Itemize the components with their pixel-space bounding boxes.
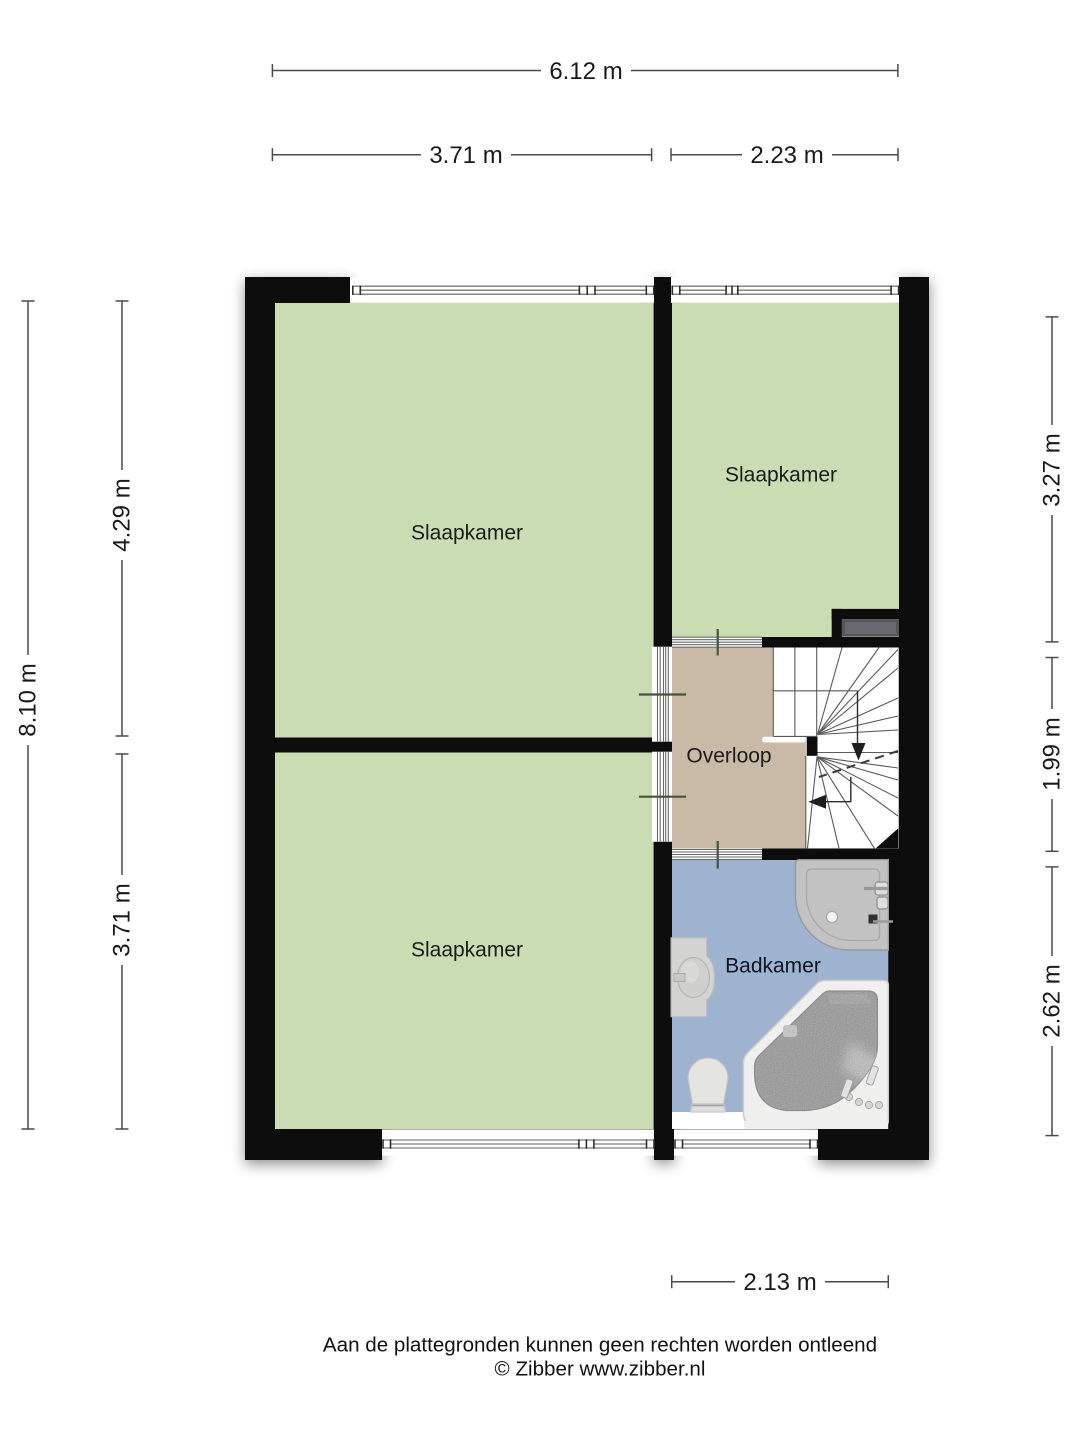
svg-text:1.99 m: 1.99 m (1039, 717, 1066, 790)
svg-text:4.29 m: 4.29 m (109, 478, 136, 551)
svg-text:8.10 m: 8.10 m (15, 663, 42, 736)
svg-text:Slaapkamer: Slaapkamer (411, 522, 523, 545)
svg-text:Slaapkamer: Slaapkamer (725, 464, 837, 487)
svg-text:3.27 m: 3.27 m (1039, 433, 1066, 506)
svg-text:3.71 m: 3.71 m (109, 883, 136, 956)
svg-text:6.12 m: 6.12 m (549, 58, 622, 85)
svg-text:Overloop: Overloop (686, 745, 771, 768)
svg-text:3.71 m: 3.71 m (429, 142, 502, 169)
svg-text:2.13 m: 2.13 m (743, 1269, 816, 1296)
svg-text:Slaapkamer: Slaapkamer (411, 939, 523, 962)
svg-text:2.62 m: 2.62 m (1039, 964, 1066, 1037)
svg-text:© Zibber www.zibber.nl: © Zibber www.zibber.nl (495, 1358, 706, 1381)
svg-text:2.23 m: 2.23 m (750, 142, 823, 169)
svg-text:Badkamer: Badkamer (725, 955, 821, 978)
svg-text:Aan de plattegronden kunnen ge: Aan de plattegronden kunnen geen rechten… (323, 1334, 877, 1357)
